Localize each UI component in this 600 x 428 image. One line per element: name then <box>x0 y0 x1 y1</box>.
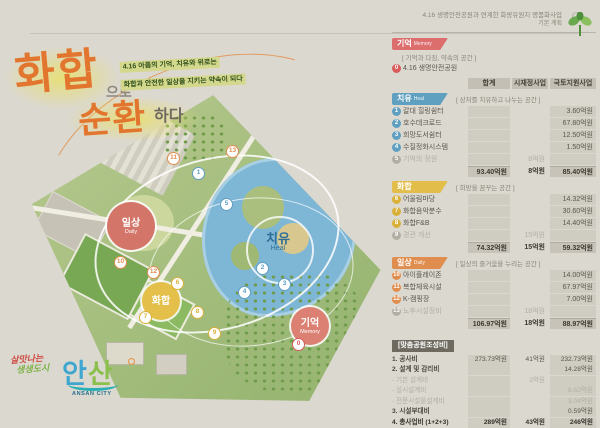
cost-row-dimmed: - 기본 설계비 2억원 <box>392 376 596 386</box>
total-national: 88.97억원 <box>550 318 596 329</box>
item-national-value: 7.00억원 <box>550 294 596 305</box>
badge-memory-label: 기억 <box>397 38 412 50</box>
space-label-memory: [ 기억과 다짐, 약속의 공간 ] <box>402 52 596 62</box>
item-label: K-캠핑장 <box>403 294 429 305</box>
logo-dot <box>128 358 135 365</box>
item-number: 12 <box>392 295 401 304</box>
item-national-value: 1.50억원 <box>550 142 596 153</box>
table-row: 2호수데크로드 67.80억원 <box>392 118 596 129</box>
item-number: 3 <box>392 131 401 140</box>
cost-label: 2. 설계 및 감리비 <box>392 365 466 375</box>
budget-panel: 4.16 생명안전공원과 연계한 화랑유원지 명품화사업 기본 계획 기억 Me… <box>392 12 596 428</box>
cost-national: 246억원 <box>550 418 596 428</box>
cost-row-dimmed: - 전문시설물설계비 3.04억원 <box>392 397 596 407</box>
cost-grand-total-row: 4. 총사업비 (1+2+3) 289억원 43억원 246억원 <box>392 418 596 428</box>
table-row: 12K-캠핑장 7.00억원 <box>392 294 596 305</box>
item-label: 갈대 힐링쉼터 <box>403 106 444 117</box>
badge-heal-eng: Heal <box>414 93 424 105</box>
badge-memory: 기억 Memory <box>392 38 448 50</box>
cost-label: - 전문시설물설계비 <box>392 397 466 407</box>
map-marker-13: 13 <box>226 145 239 158</box>
item-label: 호수데크로드 <box>403 118 442 129</box>
item-national-value: 3.60억원 <box>550 106 596 117</box>
table-row: 10아이플레이존 14.00억원 <box>392 270 596 281</box>
section-total-row: 106.97억원 18억원 88.97억원 <box>392 318 596 329</box>
total-city: 8억원 <box>512 166 548 177</box>
item-label: 아이플레이존 <box>403 270 442 281</box>
table-row: 04.16 생명안전공원 <box>392 63 596 74</box>
item-number: 10 <box>392 271 401 280</box>
item-city-value: 18억원 <box>512 306 548 317</box>
total-sum: 74.32억원 <box>468 242 510 253</box>
map-marker-12: 12 <box>147 266 160 279</box>
item-label: 화합F&B <box>403 218 430 229</box>
table-row: 11복합체육시설 67.97억원 <box>392 282 596 293</box>
space-label-heal: [ 상처를 치유하고 나누는 공간 ] <box>456 94 540 104</box>
item-number: 7 <box>392 207 401 216</box>
title-subtitle: 4.16 아픔의 기억, 치유와 위로는 화합과 안전한 일상을 지키는 약속이… <box>119 48 271 92</box>
table-row-dimmed: 5기억의 정원 8억원 <box>392 154 596 165</box>
section-total-row: 74.32억원 15억원 59.32억원 <box>392 242 596 253</box>
badge-memory-eng: Memory <box>414 38 432 50</box>
zone-heal-label: 치유 <box>248 232 308 245</box>
item-label: 경관 개선 <box>403 230 431 241</box>
cost-row: 1. 공사비 273.73억원 41억원 232.73억원 <box>392 355 596 365</box>
total-national: 85.40억원 <box>550 166 596 177</box>
cost-row: 2. 설계 및 감리비 14.28억원 <box>392 365 596 375</box>
cost-label: 4. 총사업비 (1+2+3) <box>392 418 466 428</box>
col-header-city: 시재정사업 <box>512 78 548 89</box>
zone-unity-label: 화합 <box>142 296 180 307</box>
item-national-value: 14.40억원 <box>550 218 596 229</box>
cost-row-dimmed: - 실시설계비 8.62억원 <box>392 386 596 396</box>
item-number: 4 <box>392 143 401 152</box>
title-particle-hada: 하다 <box>154 102 183 126</box>
cost-city: 43억원 <box>512 418 548 428</box>
map-marker-3: 3 <box>278 278 291 291</box>
section-daily: 일상 Daily [ 일상의 즐거움을 누리는 공간 ] 10아이플레이존 14… <box>392 257 596 329</box>
item-number: 5 <box>392 155 401 164</box>
item-number: 0 <box>392 64 401 73</box>
item-label: 노후시설정비 <box>403 306 442 317</box>
badge-unity-label: 화합 <box>397 181 412 193</box>
badge-daily-label: 일상 <box>397 257 412 269</box>
item-national-value: 30.60억원 <box>550 206 596 217</box>
ansan-city-logo: 살맛나는 생생도시 안산 ANSAN CITY <box>10 350 160 408</box>
map-marker-0: 0 <box>292 338 305 351</box>
table-row-dimmed: 13노후시설정비 18억원 <box>392 306 596 317</box>
zone-heal-eng: Heal <box>248 245 308 253</box>
item-label: 수질정화시스템 <box>403 142 448 153</box>
section-memory: 기억 Memory [ 기억과 다짐, 약속의 공간 ] 04.16 생명안전공… <box>392 38 596 74</box>
logo-city-en: ANSAN CITY <box>72 391 112 397</box>
table-row-dimmed: 9경관 개선 15억원 <box>392 230 596 241</box>
item-national-value: 67.80억원 <box>550 118 596 129</box>
zone-memory-eng: Memory <box>291 329 329 335</box>
map-marker-10: 10 <box>114 256 127 269</box>
item-number: 8 <box>392 219 401 228</box>
map-marker-1: 1 <box>192 167 205 180</box>
section-cost: [맞춤공원조성비] 1. 공사비 273.73억원 41억원 232.73억원 … <box>392 334 596 428</box>
map-marker-4: 4 <box>238 286 251 299</box>
cost-label: 1. 공사비 <box>392 355 466 365</box>
total-national: 59.32억원 <box>550 242 596 253</box>
title-word-sunhwan: 순환 <box>76 88 148 145</box>
table-row: 3희망도서쉼터 12.50억원 <box>392 130 596 141</box>
cost-label: 3. 시설부대비 <box>392 407 466 417</box>
cost-national: 232.73억원 <box>550 355 596 365</box>
section-heal: 치유 Heal [ 상처를 치유하고 나누는 공간 ] 1갈대 힐링쉼터 3.6… <box>392 93 596 177</box>
cost-total: 289억원 <box>468 418 510 428</box>
zone-daily-label: 일상 <box>107 218 155 229</box>
subtitle-line2: 화합과 안전한 일상을 지키는 약속이 되다 <box>120 73 246 91</box>
item-number: 9 <box>392 231 401 240</box>
total-sum: 93.40억원 <box>468 166 510 177</box>
cost-national: 3.04억원 <box>550 397 596 407</box>
item-label: 희망도서쉼터 <box>403 130 442 141</box>
map-marker-9: 9 <box>208 327 221 340</box>
poster-page: 화합 으로 순환 하다 4.16 아픔의 기억, 치유와 위로는 화합과 안전한… <box>0 0 600 418</box>
cost-city: 41억원 <box>512 355 548 365</box>
map-marker-7: 7 <box>139 311 152 324</box>
cost-national: 14.28억원 <box>550 365 596 375</box>
cost-label: - 기본 설계비 <box>392 376 466 386</box>
logo-swoosh <box>68 378 118 391</box>
item-number: 11 <box>392 283 401 292</box>
cost-row: 3. 시설부대비 0.59억원 <box>392 407 596 417</box>
map-marker-11: 11 <box>167 152 180 165</box>
panel-header: 4.16 생명안전공원과 연계한 화랑유원지 명품화사업 기본 계획 <box>392 12 596 28</box>
seedling-icon <box>566 12 594 38</box>
item-number: 2 <box>392 119 401 128</box>
section-unity: 화합 [ 희망을 꿈꾸는 공간 ] 6어울림마당 14.32억원 7화합음악분수… <box>392 181 596 253</box>
cost-city: 2억원 <box>512 376 548 386</box>
subtitle-line1: 4.16 아픔의 기억, 치유와 위로는 <box>119 57 220 73</box>
item-national-value: 14.32억원 <box>550 194 596 205</box>
space-label-unity: [ 희망을 꿈꾸는 공간 ] <box>456 182 515 192</box>
item-national-value: 14.00억원 <box>550 270 596 281</box>
total-city: 18억원 <box>512 318 548 329</box>
panel-header-line2: 기본 계획 <box>392 20 562 28</box>
item-label: 기억의 정원 <box>403 154 437 165</box>
cost-label: - 실시설계비 <box>392 386 466 396</box>
item-label: 어울림마당 <box>403 194 435 205</box>
badge-heal: 치유 Heal <box>392 93 448 105</box>
zone-daily-eng: Daily <box>107 229 155 235</box>
badge-daily: 일상 Daily <box>392 257 448 269</box>
table-row: 4수질정화시스템 1.50억원 <box>392 142 596 153</box>
map-marker-2: 2 <box>256 262 269 275</box>
item-city-value: 15억원 <box>512 230 548 241</box>
table-row: 1갈대 힐링쉼터 3.60억원 <box>392 106 596 117</box>
space-label-daily: [ 일상의 즐거움을 누리는 공간 ] <box>456 258 540 268</box>
col-header-national: 국토지원사업 <box>550 78 596 89</box>
poster-title: 화합 으로 순환 하다 4.16 아픔의 기억, 치유와 위로는 화합과 안전한… <box>8 40 258 160</box>
section-total-row: 93.40억원 8억원 85.40억원 <box>392 166 596 177</box>
panel-header-line1: 4.16 생명안전공원과 연계한 화랑유원지 명품화사업 <box>392 12 562 20</box>
map-marker-8: 8 <box>191 306 204 319</box>
item-number: 1 <box>392 107 401 116</box>
column-header-row: 합계 시재정사업 국토지원사업 <box>392 78 596 89</box>
badge-heal-label: 치유 <box>397 93 412 105</box>
table-row: 6어울림마당 14.32억원 <box>392 194 596 205</box>
cost-header: [맞춤공원조성비] <box>392 340 454 352</box>
map-marker-6: 6 <box>171 277 184 290</box>
item-national-value: 67.97억원 <box>550 282 596 293</box>
zone-heal: 치유 Heal <box>248 232 308 253</box>
badge-daily-eng: Daily <box>414 257 425 269</box>
item-national-value: 12.50억원 <box>550 130 596 141</box>
total-city: 15억원 <box>512 242 548 253</box>
col-header-total: 합계 <box>468 78 510 89</box>
item-label: 복합체육시설 <box>403 282 442 293</box>
zone-memory-label: 기억 <box>291 318 329 329</box>
cost-national: 8.62억원 <box>550 386 596 396</box>
table-row: 8화합F&B 14.40억원 <box>392 218 596 229</box>
cost-national: 0.59억원 <box>550 407 596 417</box>
total-sum: 106.97억원 <box>468 318 510 329</box>
item-number: 6 <box>392 195 401 204</box>
badge-unity: 화합 <box>392 181 448 193</box>
item-city-value: 8억원 <box>512 154 548 165</box>
item-label: 화합음악분수 <box>403 206 442 217</box>
table-row: 7화합음악분수 30.60억원 <box>392 206 596 217</box>
map-marker-5: 5 <box>220 198 233 211</box>
zone-daily: 일상 Daily <box>107 202 155 250</box>
cost-total: 273.73억원 <box>468 355 510 365</box>
item-label: 4.16 생명안전공원 <box>403 63 457 74</box>
item-number: 13 <box>392 307 401 316</box>
map-building-2 <box>156 354 186 375</box>
